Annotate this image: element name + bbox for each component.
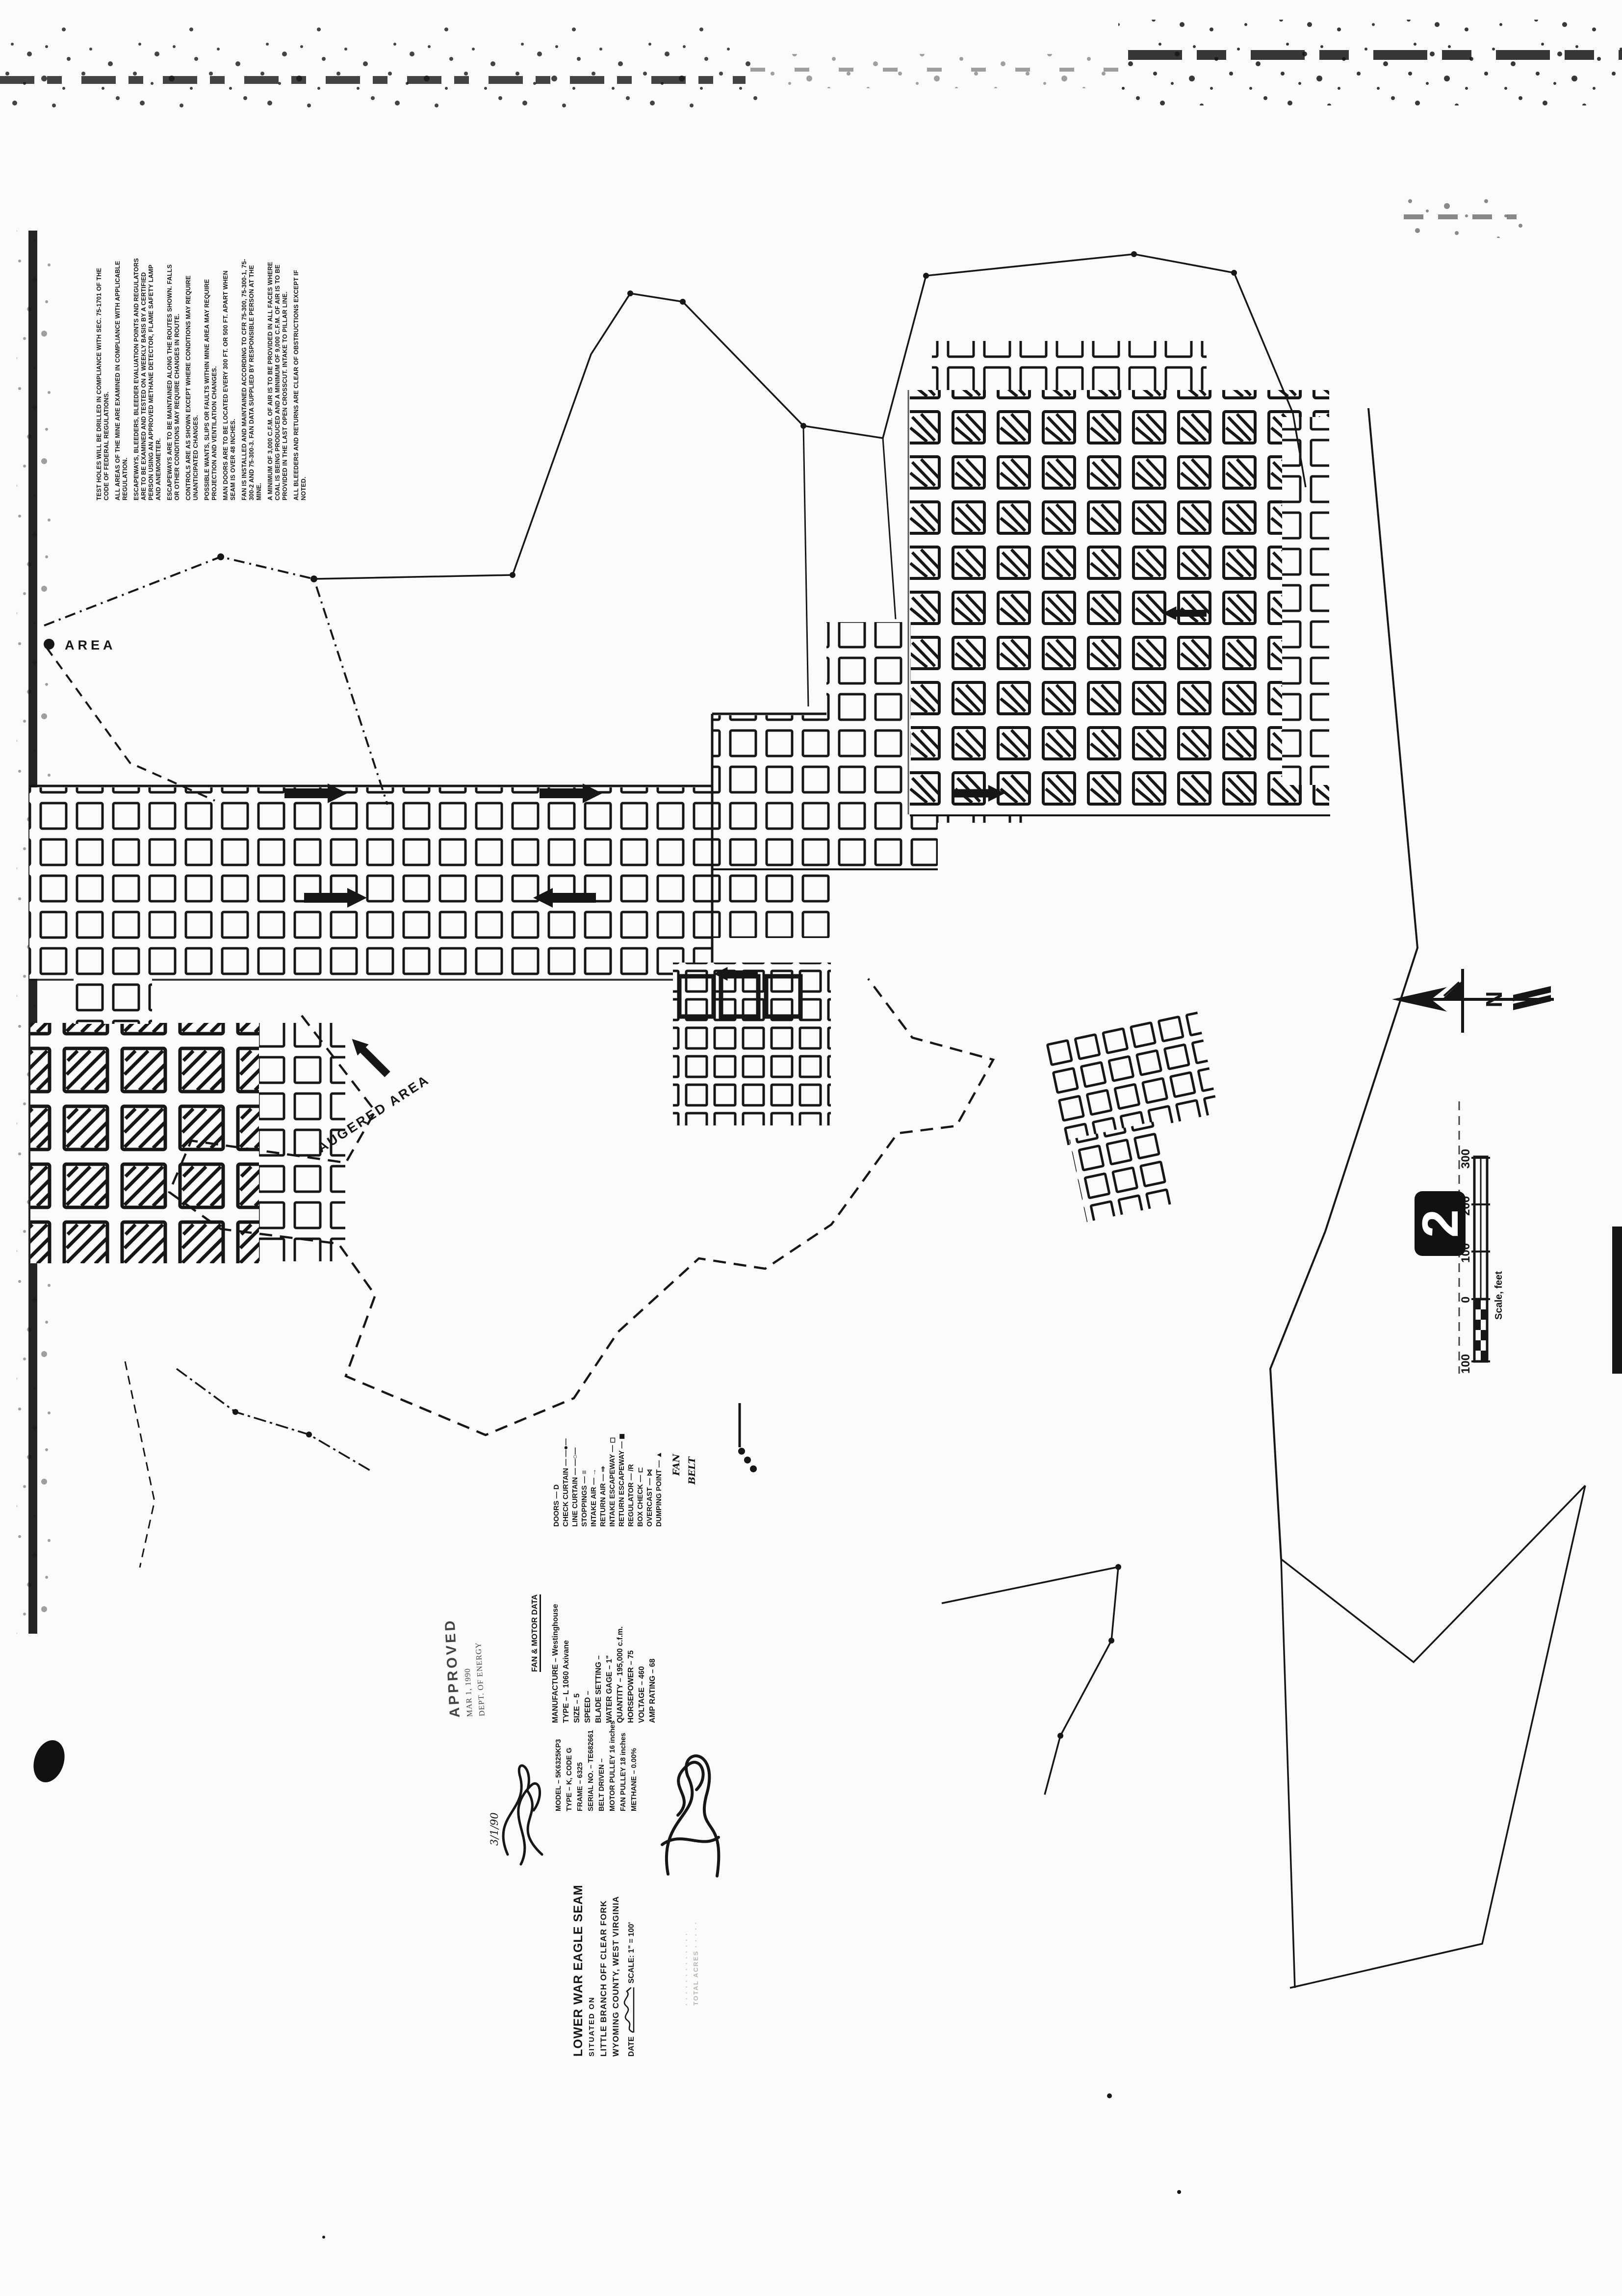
legend-item-box-check: BOX CHECK — ⊏ <box>636 1357 645 1527</box>
scanned-mine-map-sheet: N 300 200 100 0 100 Scale, feet 2 <box>0 0 1622 2296</box>
branch-line: LITTLE BRANCH OFF CLEAR FORK <box>597 1860 610 2057</box>
date-label: DATE <box>624 2036 639 2057</box>
workings-northeast-section <box>826 341 1330 815</box>
sheet-number-plate: 2 <box>1412 1191 1469 1256</box>
model-data-row: METHANE – 0.00% <box>629 1669 640 1811</box>
faint-line: TOTAL ACRES · · · · · <box>691 1879 700 2006</box>
workings-south-center-block <box>673 963 831 1125</box>
legend-item-intake-escapeway: INTAKE ESCAPEWAY — ◻ <box>608 1357 618 1527</box>
faint-pencil-notes: · · · · · · · · · · · · · TOTAL ACRES · … <box>682 1879 702 2006</box>
seam-title: LOWER WAR EAGLE SEAM <box>570 1860 586 2057</box>
note-paragraph: A MINIMUM OF 3,000 C.F.M. OF AIR IS TO B… <box>267 258 289 500</box>
legend-item-intake-air: INTAKE AIR — → <box>590 1357 599 1527</box>
legend-item-overcast: OVERCAST — ⋈ <box>645 1357 655 1527</box>
model-data-row: FRAME – 6325 <box>575 1669 586 1811</box>
date-scribble-art <box>623 1986 635 2034</box>
model-data-row: SERIAL NO. – TE682661 <box>586 1669 596 1811</box>
fan-location-dots <box>738 1403 757 1472</box>
area-label-group: AREA <box>44 638 116 652</box>
legend-block: DOORS — D CHECK CURTAIN — —●— LINE CURTA… <box>552 1357 674 1527</box>
scale-tick-100b: 100 <box>1459 1354 1472 1374</box>
model-data-row: TYPE – K, CODE G <box>564 1669 575 1811</box>
general-notes-block: TEST HOLES WILL BE DRILLED IN COMPLIANCE… <box>96 258 314 500</box>
note-paragraph: ALL AREAS OF THE MINE ARE EXAMINED IN CO… <box>114 258 129 500</box>
workings-main-west-band <box>29 786 712 980</box>
situated-on: SITUATED ON <box>586 1860 597 2057</box>
scale-tick-0: 0 <box>1459 1297 1472 1303</box>
handwritten-approval-date: 3/1/90 <box>489 1782 503 1846</box>
county-line: WYOMING COUNTY, WEST VIRGINIA <box>610 1860 622 2057</box>
note-paragraph: POSSIBLE WANTS, SLIPS OR FAULTS WITHIN M… <box>204 258 218 500</box>
model-data-row: BELT DRIVEN – <box>596 1669 607 1811</box>
area-label: AREA <box>65 638 116 652</box>
model-data-row: MOTOR PULLEY 16 inches <box>607 1669 618 1811</box>
note-paragraph: TEST HOLES WILL BE DRILLED IN COMPLIANCE… <box>96 258 110 500</box>
scale-caption: Scale, feet <box>1493 1271 1504 1320</box>
signature-right <box>662 1756 719 1876</box>
legend-item-regulator: REGULATOR — /R <box>627 1357 636 1527</box>
legend-item-dumping-point: DUMPING POINT — ▲ <box>655 1357 664 1527</box>
scan-noise <box>0 20 1622 238</box>
legend-item-doors: DOORS — D <box>552 1357 562 1527</box>
legend-item-return-air: RETURN AIR — ⇒ <box>599 1357 608 1527</box>
title-block: LOWER WAR EAGLE SEAM SITUATED ON LITTLE … <box>570 1860 642 2057</box>
scale-label: SCALE: 1" = 100' <box>624 1922 639 1983</box>
legend-item-stoppings: STOPPINGS — ≡ <box>580 1357 590 1527</box>
legend-item-check-curtain: CHECK CURTAIN — —●— <box>562 1357 571 1527</box>
note-paragraph: FAN IS INSTALLED AND MAINTAINED ACCORDIN… <box>241 258 263 500</box>
legend-item-line-curtain: LINE CURTAIN — —○— <box>571 1357 580 1527</box>
fold-streak <box>17 231 70 1786</box>
fan-motor-data-title: FAN & MOTOR DATA <box>531 1574 545 1672</box>
note-paragraph: ESCAPEWAYS ARE TO BE MAINTAINED ALONG TH… <box>166 258 181 500</box>
approval-stamp: APPROVED MAR 1, 1990 DEPT. OF ENERGY <box>440 1603 495 1718</box>
handwritten-fan-label: FAN <box>671 1440 685 1476</box>
motor-model-list: MODEL – 5K6325KP3 TYPE – K, CODE G FRAME… <box>553 1669 643 1811</box>
model-data-row: MODEL – 5K6325KP3 <box>553 1669 564 1811</box>
signature-left <box>503 1766 542 1864</box>
fan-data-row: AMP RATING – 68 <box>647 1521 658 1723</box>
scale-tick-300: 300 <box>1459 1149 1472 1169</box>
date-scribble <box>623 1986 641 2034</box>
north-label: N <box>1481 991 1507 1007</box>
edge-marks <box>322 1226 1622 2239</box>
workings-southeast-patches <box>1045 1010 1219 1223</box>
note-paragraph: ESCAPEWAYS, BLEEDERS, BLEEDER EVALUATION… <box>133 258 162 500</box>
note-paragraph: ALL BLEEDERS AND RETURNS ARE CLEAR OF OB… <box>293 258 308 500</box>
faint-line: · · · · · · · · · · · · · <box>682 1879 691 2006</box>
date-scale-row: DATE SCALE: 1" = 100' <box>622 1860 639 2057</box>
handwritten-belt-label: BELT <box>687 1449 700 1485</box>
model-data-row: FAN PULLEY 18 inches <box>618 1669 629 1811</box>
sheet-number: 2 <box>1412 1209 1469 1238</box>
workings-augered-west-block <box>30 979 345 1263</box>
legend-item-return-escapeway: RETURN ESCAPEWAY — ◼ <box>618 1357 627 1527</box>
north-arrow: N <box>1392 969 1554 1033</box>
note-paragraph: MAN DOORS ARE TO BE LOCATED EVERY 300 FT… <box>222 258 237 500</box>
note-paragraph: CONTROLS ARE AS SHOWN EXCEPT WHERE CONDI… <box>185 258 200 500</box>
